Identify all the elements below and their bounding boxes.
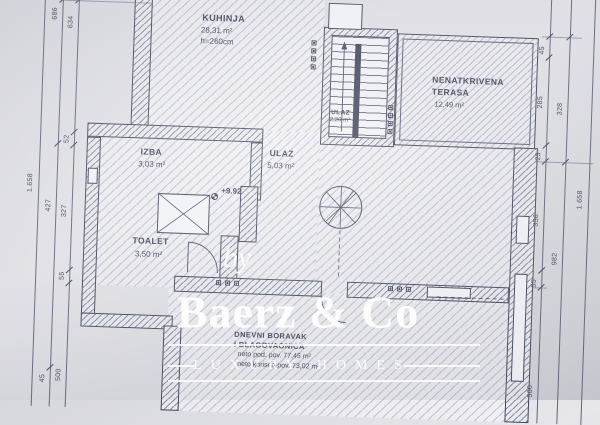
floorplan-photo: { "watermark": { "prefix": "by", "brand"… <box>0 0 600 400</box>
dim-left-far-total: 1.658 <box>27 173 35 192</box>
kuhinja-label: KUHINJA <box>202 12 245 23</box>
izba-label: IZBA <box>140 146 162 157</box>
ulaz-stubiste-area: 2,20 m² <box>330 117 351 124</box>
dim-right-inner-0: 45 <box>539 46 546 55</box>
dim-right-inner-2: 23 <box>535 152 542 161</box>
dim-right-far-total: 1.658 <box>576 190 584 209</box>
detail-marker-icon <box>388 105 393 110</box>
detail-marker-icon <box>311 64 316 69</box>
dim-left-outer-0: 686 <box>52 7 59 20</box>
terasa-area-label: 12,49 m² <box>434 100 464 110</box>
watermark-rule-top <box>168 344 480 346</box>
detail-marker-icon <box>387 129 392 134</box>
dim-right-inner-5: 500 <box>527 385 534 398</box>
dim-right-inner-3: 356 <box>533 214 540 227</box>
kuhinja-area: 28,31 m² <box>201 25 233 35</box>
kuhinja-height: h=260cm <box>200 36 233 46</box>
detail-marker-icon <box>311 56 316 61</box>
dim-left-inner-4: 500 <box>55 368 62 381</box>
detail-marker-icon <box>311 40 316 45</box>
watermark-by: by <box>223 241 251 275</box>
izba-area-label: 3,03 m² <box>138 159 165 169</box>
dim-right-inner-1: 285 <box>537 96 544 109</box>
watermark-rule-right <box>404 365 480 367</box>
drawing-sheet: KUHINJA 28,31 m² h=260cm NENATKRIVENA TE… <box>0 0 600 400</box>
ulaz-area-label: 5,03 m² <box>267 161 294 171</box>
dim-right-inner-4: 55 <box>531 279 538 288</box>
detail-marker-icon <box>311 48 316 53</box>
terasa-label-2: TERASA <box>432 87 470 98</box>
dim-right-outer-0: 328 <box>557 103 564 116</box>
watermark-rule-left <box>168 365 194 367</box>
toalet-label: TOALET <box>132 235 169 246</box>
elevation-label: +9.92 <box>221 186 242 196</box>
detail-marker-icon <box>388 113 393 118</box>
dim-left-outer-1: 427 <box>45 199 52 212</box>
watermark-rule-bottom <box>168 380 480 382</box>
toalet-area-label: 3,50 m² <box>135 249 162 259</box>
dim-left-inner-3: 55 <box>59 271 66 280</box>
dim-left-outer-2: 45 <box>39 374 46 383</box>
detail-marker-icon <box>388 121 393 126</box>
watermark-brand: Baerz & Co <box>177 286 419 339</box>
dim-left-inner-1: 52 <box>63 135 70 144</box>
dim-left-inner-0: 634 <box>67 15 74 28</box>
dim-left-inner-2: 327 <box>61 204 68 217</box>
ulaz-stubiste-label: ULAZ <box>331 109 350 117</box>
dim-right-outer-1: 982 <box>551 253 558 266</box>
watermark-tagline: LUXURY HOMES <box>193 358 411 374</box>
ulaz-label: ULAZ <box>269 148 294 159</box>
